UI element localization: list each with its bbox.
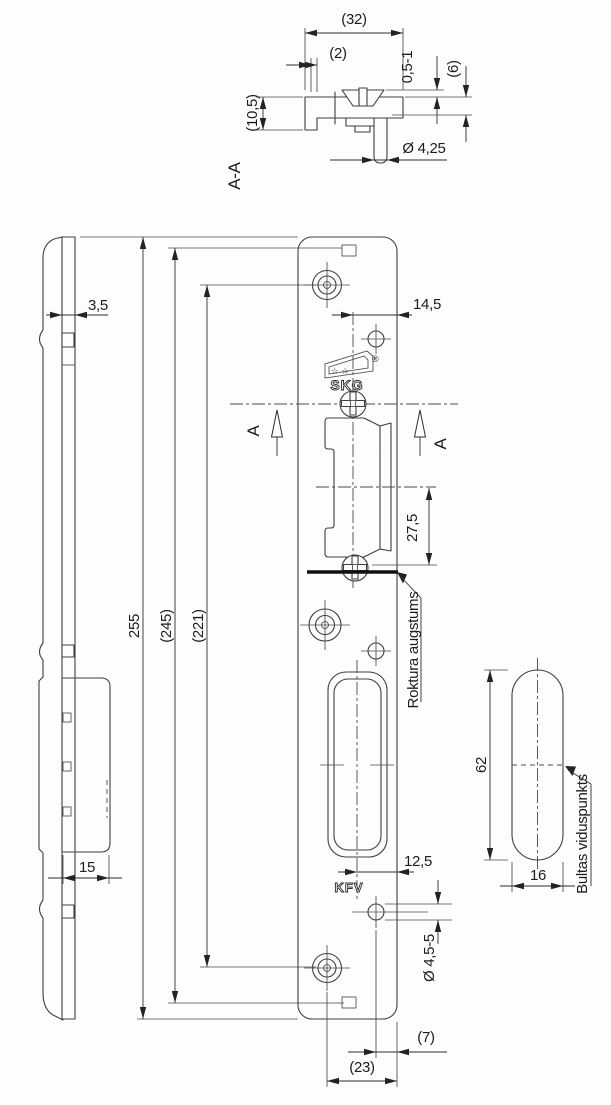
- counterbored-hole-middle: [300, 600, 350, 650]
- latch-cutout: [325, 418, 380, 557]
- side-profile-left-edge: [39, 237, 63, 1020]
- dim-section-depth: (6): [445, 60, 462, 78]
- top-notch: [342, 245, 356, 256]
- pilot-hole-top: [361, 324, 391, 354]
- kfv-logo: KFV: [335, 880, 364, 895]
- dim-hole-to-edge: (7): [417, 1029, 435, 1046]
- height-dimensions: 255 (245) (221): [80, 237, 344, 1019]
- bottom-notch: [342, 997, 356, 1008]
- registered-mark: ®: [372, 354, 379, 364]
- side-screw-head: [62, 905, 74, 918]
- note-handle-height: Roktura augstums: [405, 592, 422, 709]
- side-screw-head: [62, 645, 74, 657]
- detail-view-bolt-slot: Bultas viduspunkts 62 16: [473, 658, 591, 894]
- handle-slot: [320, 660, 394, 900]
- skg-logo: ☆ ☆ ® SKG: [325, 351, 379, 393]
- dim-slot-to-edge: 12,5: [404, 853, 432, 870]
- phillips-screw-bottom: [342, 555, 368, 581]
- dim-screw-spacing: (221): [190, 609, 207, 643]
- note-bolt-center: Bultas viduspunkts: [574, 774, 591, 894]
- dim-hole-to-hole: (23): [349, 1059, 375, 1076]
- counterbored-hole-top: [304, 262, 350, 308]
- dim-plate-thickness: 3,5: [88, 297, 108, 314]
- front-view: ☆ ☆ ® SKG A A: [230, 237, 458, 1087]
- counterbored-hole-bottom: [304, 945, 350, 991]
- dim-handle-offset: 27,5: [404, 514, 421, 542]
- dim-hole-diameter: Ø 4,5-5: [421, 934, 438, 982]
- dim-notch-spacing: (245): [158, 609, 175, 643]
- dim-section-protrusion: 0,5-1: [399, 51, 416, 84]
- drawing-canvas: (32) (2) (10,5) 0,5-1 (6) Ø 4,25 A-A: [0, 0, 611, 1105]
- technical-drawing-strike-plate: (32) (2) (10,5) 0,5-1 (6) Ø 4,25 A-A: [0, 0, 611, 1105]
- pilot-hole-bottom: [352, 896, 428, 928]
- section-view: (32) (2) (10,5) 0,5-1 (6) Ø 4,25 A-A: [225, 11, 472, 190]
- dim-slot-width: 16: [530, 867, 546, 884]
- dim-pin-diameter: Ø 4,25: [402, 140, 445, 157]
- dim-center-to-edge: 14,5: [413, 296, 441, 313]
- plate-outline: [298, 237, 397, 1019]
- screw-washer: [346, 118, 378, 126]
- skg-text: SKG: [330, 377, 363, 393]
- dim-section-width: (32): [341, 11, 367, 28]
- phillips-screw-top: [340, 391, 366, 417]
- dim-housing-depth: 15: [79, 859, 95, 876]
- dim-section-lip: (2): [329, 45, 347, 62]
- skg-stars: ☆ ☆: [331, 366, 350, 376]
- side-view: 3,5 15: [39, 237, 122, 1020]
- section-view-label: A-A: [225, 161, 244, 189]
- section-marker-a-left: A: [244, 425, 263, 437]
- dim-section-flange: (10,5): [244, 94, 261, 132]
- guide-pin: [374, 118, 387, 163]
- section-marker-a-right: A: [431, 438, 450, 450]
- pilot-hole-middle: [361, 636, 391, 666]
- dim-slot-height: 62: [473, 757, 490, 773]
- dim-total-height: 255: [126, 614, 143, 638]
- side-screw-head: [62, 333, 74, 347]
- side-latch-housing: [63, 678, 110, 852]
